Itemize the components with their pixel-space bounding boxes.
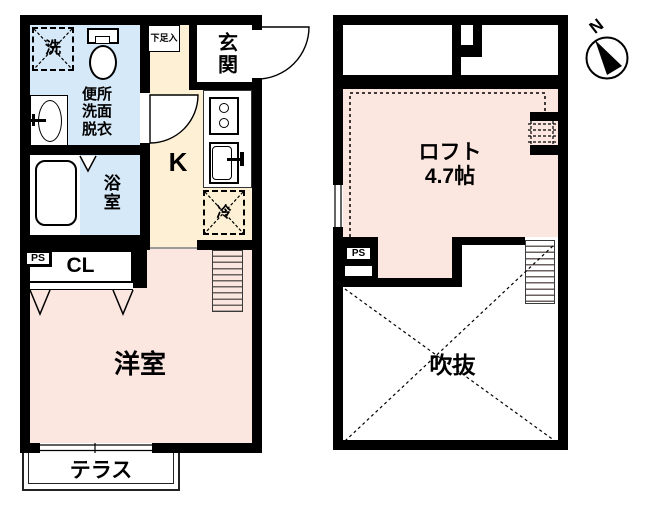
washbasin-faucet-handle-icon — [32, 114, 35, 126]
bathtub-icon — [35, 160, 77, 226]
terrace-window — [40, 443, 152, 453]
room-label-bathroom: 浴室 — [98, 160, 122, 226]
toilet-tank-detail-icon — [95, 36, 110, 43]
wall-segment — [133, 250, 147, 288]
stove-burner1-icon — [219, 103, 229, 113]
room-label-pipe-space-2f: PS — [345, 246, 372, 261]
room-label-washing-machine: 洗 — [32, 27, 74, 71]
staircase-2f-icon — [525, 240, 555, 304]
wall-segment — [189, 25, 197, 90]
wall-segment — [20, 443, 40, 453]
sanitary-line1: 便所 — [82, 86, 112, 103]
room-label-western-room: 洋室 — [85, 349, 195, 381]
loft-side-window — [333, 185, 343, 227]
staircase-1f-icon — [212, 250, 243, 312]
room-label-loft: ロフト 4.7帖 — [398, 138, 502, 192]
room-label-entrance: 玄関 — [212, 28, 238, 80]
room-label-shoe-cabinet: 下足入 — [148, 25, 180, 52]
kitchen-room-divider-line — [150, 247, 197, 249]
loft-name: ロフト — [419, 141, 482, 165]
wall-segment — [189, 82, 252, 90]
wall-segment — [333, 15, 568, 25]
wall-segment — [333, 440, 568, 450]
wall-segment — [30, 145, 140, 155]
sanitary-line3: 脱衣 — [82, 121, 112, 138]
wall-segment — [252, 15, 262, 30]
wall-segment — [530, 112, 558, 121]
closet-front-strip — [30, 283, 133, 290]
wall-segment — [20, 15, 262, 25]
loft-size: 4.7帖 — [425, 165, 475, 189]
wall-segment — [197, 240, 262, 250]
wall-segment — [252, 78, 262, 453]
toilet-bowl-icon — [89, 45, 117, 80]
wall-segment — [530, 145, 558, 155]
compass-north-label: N — [586, 15, 607, 38]
wall-segment — [20, 235, 150, 250]
wall-segment — [20, 15, 30, 453]
floor-plan-canvas: N 洗 便所 洗面 脱衣 浴室 K 玄関 下足入 冷 PS CL 洋室 テラス … — [0, 0, 649, 508]
compass-icon: N — [580, 8, 642, 88]
wall-segment — [452, 237, 525, 245]
wall-segment — [558, 15, 568, 450]
stove-burner2-icon — [219, 118, 229, 128]
wall-segment — [333, 227, 343, 450]
room-label-sanitary: 便所 洗面 脱衣 — [60, 83, 134, 141]
room-label-terrace: テラス — [40, 457, 162, 485]
room-label-closet: CL — [28, 250, 133, 283]
kitchen-sink-icon — [212, 146, 232, 180]
pipe-space-2f-slot — [345, 266, 372, 276]
kitchen-faucet-handle-icon — [240, 152, 244, 166]
wall-segment — [343, 75, 558, 89]
room-label-kitchen: K — [158, 147, 198, 179]
sanitary-line2: 洗面 — [82, 103, 112, 120]
room-label-refrigerator: 冷 — [203, 190, 245, 235]
wall-segment — [140, 143, 150, 250]
wall-segment — [152, 443, 262, 453]
compass-needle-icon — [595, 40, 622, 75]
wall-segment — [452, 45, 482, 57]
loft-floor-lower — [378, 237, 452, 278]
entrance-door-arc-icon — [257, 27, 309, 79]
room-label-void: 吹抜 — [410, 350, 495, 380]
wall-segment — [343, 237, 378, 287]
wall-segment — [333, 15, 343, 185]
